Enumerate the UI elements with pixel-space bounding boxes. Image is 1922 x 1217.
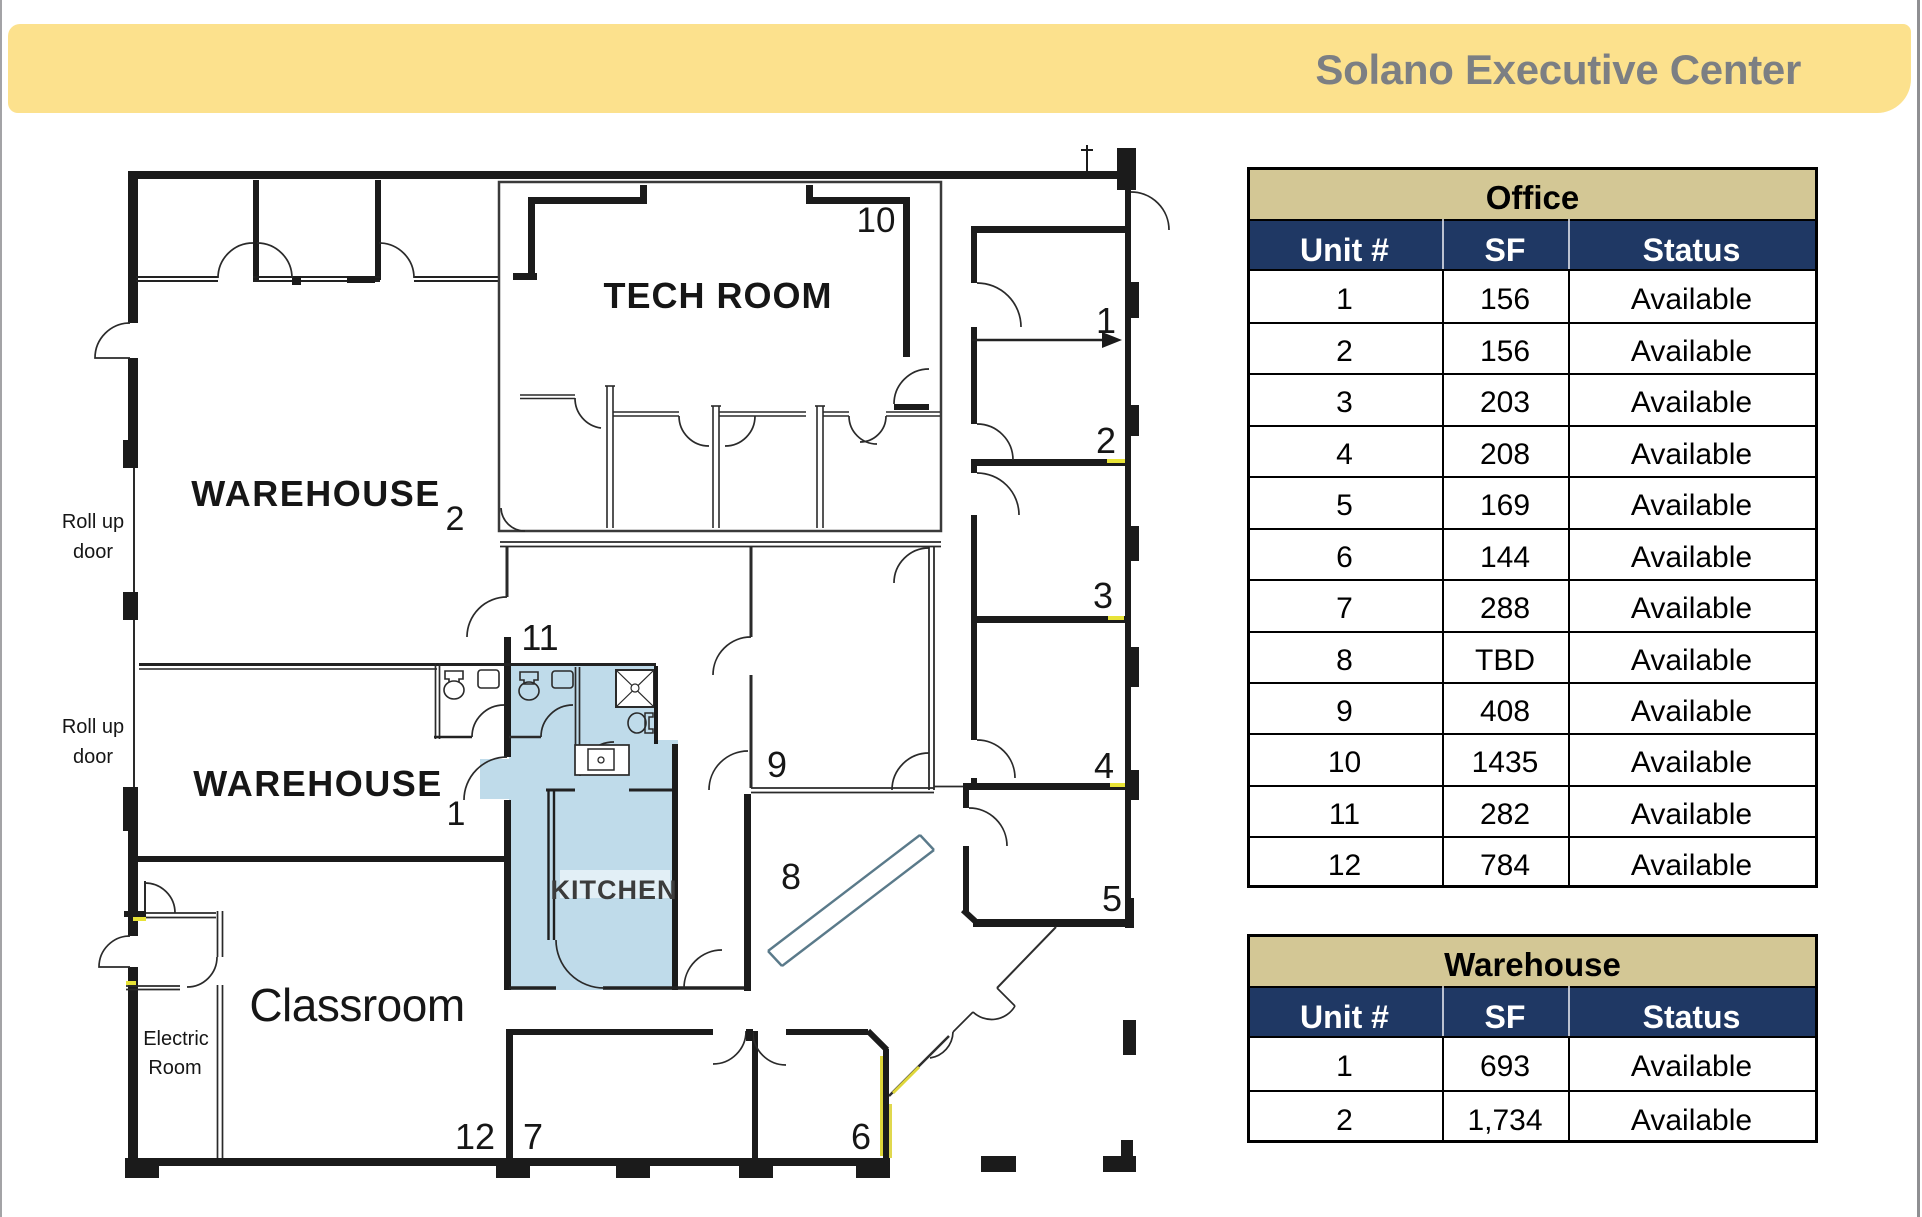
svg-text:KITCHEN: KITCHEN	[551, 875, 678, 905]
svg-text:WAREHOUSE: WAREHOUSE	[193, 763, 443, 804]
svg-text:4: 4	[1094, 745, 1114, 786]
svg-text:door: door	[73, 746, 113, 768]
svg-text:12: 12	[455, 1116, 495, 1157]
svg-text:11: 11	[521, 617, 558, 658]
svg-text:Roll up: Roll up	[62, 716, 124, 738]
svg-text:Roll up: Roll up	[62, 511, 124, 533]
svg-text:8: 8	[781, 856, 801, 897]
svg-text:1: 1	[1096, 300, 1116, 341]
svg-text:Classroom: Classroom	[249, 979, 464, 1031]
svg-text:2: 2	[1096, 420, 1116, 461]
svg-text:TECH ROOM: TECH ROOM	[604, 275, 833, 316]
svg-text:Electric: Electric	[143, 1028, 209, 1050]
svg-text:10: 10	[857, 201, 896, 240]
svg-text:WAREHOUSE: WAREHOUSE	[191, 473, 441, 514]
svg-text:Room: Room	[148, 1057, 201, 1079]
svg-text:6: 6	[851, 1116, 871, 1157]
svg-text:5: 5	[1102, 878, 1122, 919]
svg-text:2: 2	[446, 500, 465, 538]
svg-text:9: 9	[767, 744, 787, 785]
svg-text:3: 3	[1093, 575, 1113, 616]
svg-text:7: 7	[523, 1116, 543, 1157]
svg-text:door: door	[73, 541, 113, 563]
svg-text:1: 1	[447, 795, 466, 833]
